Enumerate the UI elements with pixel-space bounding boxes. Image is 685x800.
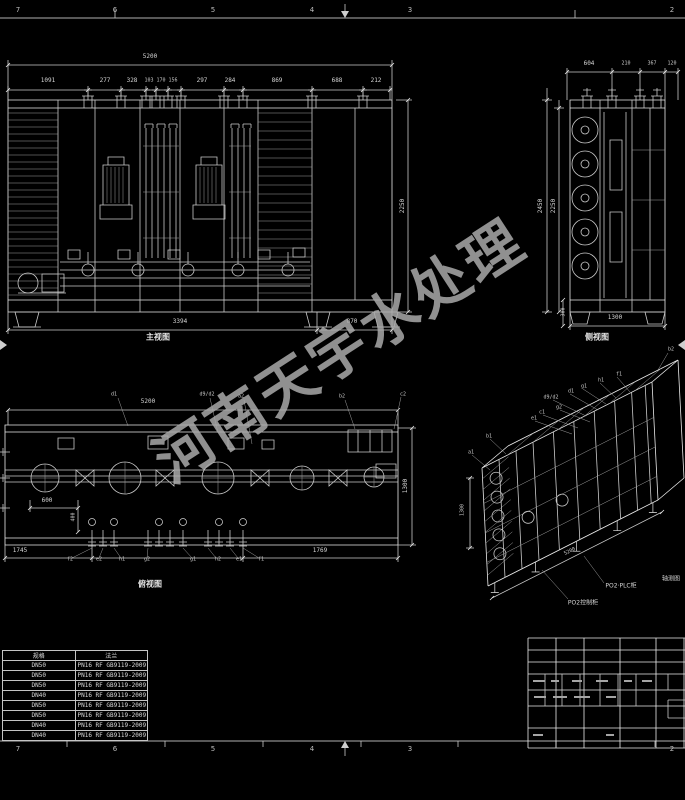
dim-base: 1745 <box>13 548 27 554</box>
dim-overall-length: 5200 <box>141 399 155 405</box>
dim-segment: 103 <box>144 79 153 84</box>
nozzle-leader: b1 <box>486 435 492 440</box>
dim-width: 1300 <box>403 479 409 493</box>
dim-segment: 297 <box>197 78 208 84</box>
flange-spec-table: 规格 法兰 DN50PN16 RF GB9119-2009DN50PN16 RF… <box>2 650 148 741</box>
table-row: DN50PN16 RF GB9119-2009 <box>3 711 148 721</box>
zone-number: 4 <box>310 6 314 14</box>
table-row: DN50PN16 RF GB9119-2009 <box>3 681 148 691</box>
nozzle-leader: h1 <box>119 558 125 563</box>
dim-segment: 170 <box>156 79 165 84</box>
zone-number: 4 <box>310 745 314 753</box>
table-cell: PN16 RF GB9119-2009 <box>75 731 148 741</box>
table-cell: DN50 <box>3 661 76 671</box>
nozzle-leader: e1 <box>531 417 537 422</box>
dim-segment: 210 <box>621 62 630 67</box>
nozzle-leader: h1 <box>598 379 604 384</box>
nozzle-leader: b2 <box>668 348 674 353</box>
table-row: DN50PN16 RF GB9119-2009 <box>3 661 148 671</box>
nozzle-leader: b2 <box>339 395 345 400</box>
zone-number: 5 <box>211 6 215 14</box>
nozzle-leader: g2 <box>556 406 562 411</box>
table-cell: DN50 <box>3 701 76 711</box>
plan-view-drawing <box>0 397 416 562</box>
nozzle-leader: d9/d2 <box>543 396 558 401</box>
table-cell: PN16 RF GB9119-2009 <box>75 661 148 671</box>
nozzle-leader: f1 <box>616 373 622 378</box>
nozzle-leader: d1 <box>568 390 574 395</box>
table-cell: PN16 RF GB9119-2009 <box>75 701 148 711</box>
table-row: DN50PN16 RF GB9119-2009 <box>3 701 148 711</box>
table-cell: PN16 RF GB9119-2009 <box>75 721 148 731</box>
dim-height: 2250 <box>400 199 406 213</box>
dim-foot: 300 <box>562 307 567 316</box>
table-cell: PN16 RF GB9119-2009 <box>75 671 148 681</box>
nozzle-leader: f1 <box>258 558 264 563</box>
view-label-front: 主视图 <box>146 332 170 343</box>
drawing-sheet: 7 6 5 4 3 2 7 6 5 4 3 2 5200 1091 277 32… <box>0 0 685 800</box>
dim-segment: 284 <box>225 78 236 84</box>
dim-segment: 277 <box>100 78 111 84</box>
zone-number: 6 <box>113 745 117 753</box>
dim-inner: 600 <box>42 498 53 504</box>
nozzle-leader: c2 <box>400 393 406 398</box>
dim-segment: 212 <box>371 78 382 84</box>
nozzle-leader: e1 <box>236 558 242 563</box>
nozzle-leader: d9/d2 <box>199 393 214 398</box>
nozzle-leader: c1 <box>539 411 545 416</box>
table-cell: DN50 <box>3 681 76 691</box>
nozzle-leader: a2 <box>238 395 244 400</box>
table-row: DN40PN16 RF GB9119-2009 <box>3 731 148 741</box>
table-row: DN40PN16 RF GB9119-2009 <box>3 721 148 731</box>
view-label-iso: 轴测图 <box>662 574 680 583</box>
dim-height: 2450 <box>538 199 544 213</box>
table-cell: DN50 <box>3 711 76 721</box>
side-view-drawing <box>542 68 680 330</box>
table-row: DN40PN16 RF GB9119-2009 <box>3 691 148 701</box>
isometric-view-drawing <box>466 353 684 600</box>
dim-segment: 869 <box>272 78 283 84</box>
dim-overall-length: 5200 <box>143 54 157 60</box>
dim-base: 1769 <box>313 548 327 554</box>
callout-plc-cabinet: PO2·PLC柜 <box>605 581 636 590</box>
callout-control-cabinet: PO2控制柜 <box>568 598 598 607</box>
table-header-flange: 法兰 <box>75 651 148 661</box>
table-header-spec: 规格 <box>3 651 76 661</box>
flange-table-body: DN50PN16 RF GB9119-2009DN50PN16 RF GB911… <box>3 661 148 741</box>
nozzle-leader: a1 <box>468 451 474 456</box>
dim-segment: 120 <box>667 62 676 67</box>
zone-number: 5 <box>211 745 215 753</box>
table-cell: DN50 <box>3 671 76 681</box>
table-cell: PN16 RF GB9119-2009 <box>75 691 148 701</box>
zone-number: 7 <box>16 745 20 753</box>
nozzle-leader: f2 <box>67 558 73 563</box>
dim-segment: 328 <box>127 78 138 84</box>
nozzle-leader: g1 <box>581 385 587 390</box>
view-label-side: 侧视图 <box>585 332 609 343</box>
front-view-drawing <box>6 60 412 334</box>
zone-number: 3 <box>408 745 412 753</box>
nozzle-leader: g2 <box>144 558 150 563</box>
view-label-plan: 俯视图 <box>138 579 162 590</box>
table-cell: PN16 RF GB9119-2009 <box>75 711 148 721</box>
table-row: DN50PN16 RF GB9119-2009 <box>3 671 148 681</box>
table-cell: PN16 RF GB9119-2009 <box>75 681 148 691</box>
dim-segment: 367 <box>647 62 656 67</box>
table-cell: DN40 <box>3 721 76 731</box>
nozzle-leader: h2 <box>215 558 221 563</box>
dim-height: 1300 <box>461 504 466 516</box>
dim-segment: 1091 <box>41 78 55 84</box>
dim-inner: 400 <box>72 512 77 521</box>
nozzle-leader: d1 <box>111 393 117 398</box>
dim-base: 1300 <box>608 315 622 321</box>
sheet-border <box>0 4 685 756</box>
zone-number: 3 <box>408 6 412 14</box>
dim-segment: 156 <box>168 79 177 84</box>
title-block-grid <box>528 638 685 748</box>
nozzle-leader: e2 <box>96 558 102 563</box>
dim-segment: 604 <box>584 61 595 67</box>
zone-number: 2 <box>670 745 674 753</box>
dim-segment: 688 <box>332 78 343 84</box>
zone-number: 7 <box>16 6 20 14</box>
dim-base: 3394 <box>173 319 187 325</box>
zone-number: 6 <box>113 6 117 14</box>
table-cell: DN40 <box>3 691 76 701</box>
nozzle-leader: g1 <box>190 558 196 563</box>
zone-number: 2 <box>670 6 674 14</box>
dim-base: 870 <box>347 319 358 325</box>
table-cell: DN40 <box>3 731 76 741</box>
dim-height: 2250 <box>551 199 557 213</box>
